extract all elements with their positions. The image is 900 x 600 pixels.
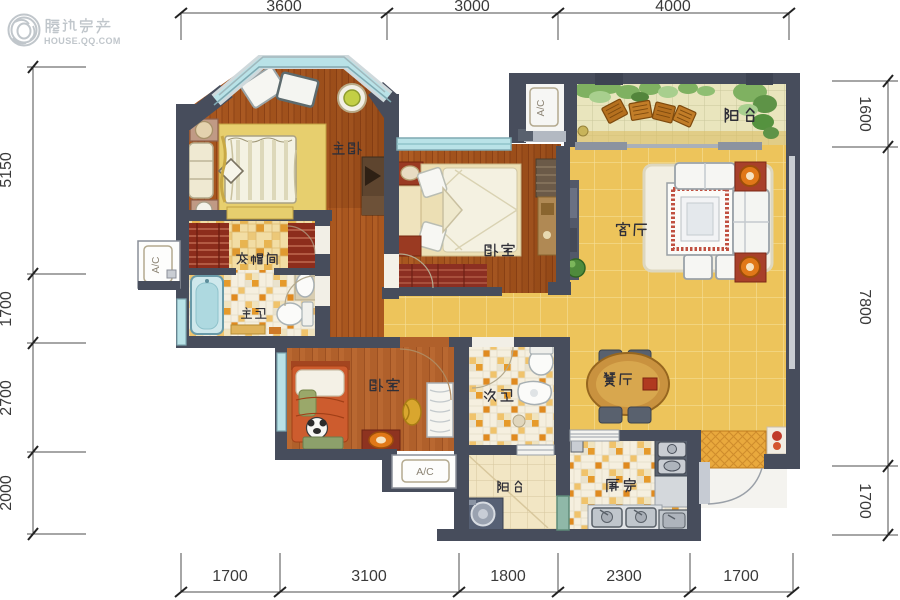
svg-text:3600: 3600 bbox=[266, 0, 302, 15]
svg-text:1600: 1600 bbox=[856, 96, 873, 132]
svg-text:5150: 5150 bbox=[0, 152, 15, 188]
svg-text:1700: 1700 bbox=[0, 291, 15, 327]
svg-text:3100: 3100 bbox=[351, 568, 387, 585]
svg-text:A/C: A/C bbox=[536, 100, 547, 117]
svg-text:2000: 2000 bbox=[0, 475, 15, 511]
svg-text:2700: 2700 bbox=[0, 380, 15, 416]
svg-text:1700: 1700 bbox=[856, 483, 873, 519]
svg-text:A/C: A/C bbox=[416, 466, 434, 478]
svg-text:7800: 7800 bbox=[856, 289, 873, 325]
svg-text:3000: 3000 bbox=[454, 0, 490, 15]
svg-text:2300: 2300 bbox=[606, 568, 642, 585]
svg-text:1800: 1800 bbox=[490, 568, 526, 585]
svg-text:1700: 1700 bbox=[723, 568, 759, 585]
svg-text:4000: 4000 bbox=[655, 0, 691, 15]
svg-text:1700: 1700 bbox=[212, 568, 248, 585]
svg-text:A/C: A/C bbox=[151, 257, 162, 274]
svg-text:HOUSE.QQ.COM: HOUSE.QQ.COM bbox=[44, 36, 121, 46]
